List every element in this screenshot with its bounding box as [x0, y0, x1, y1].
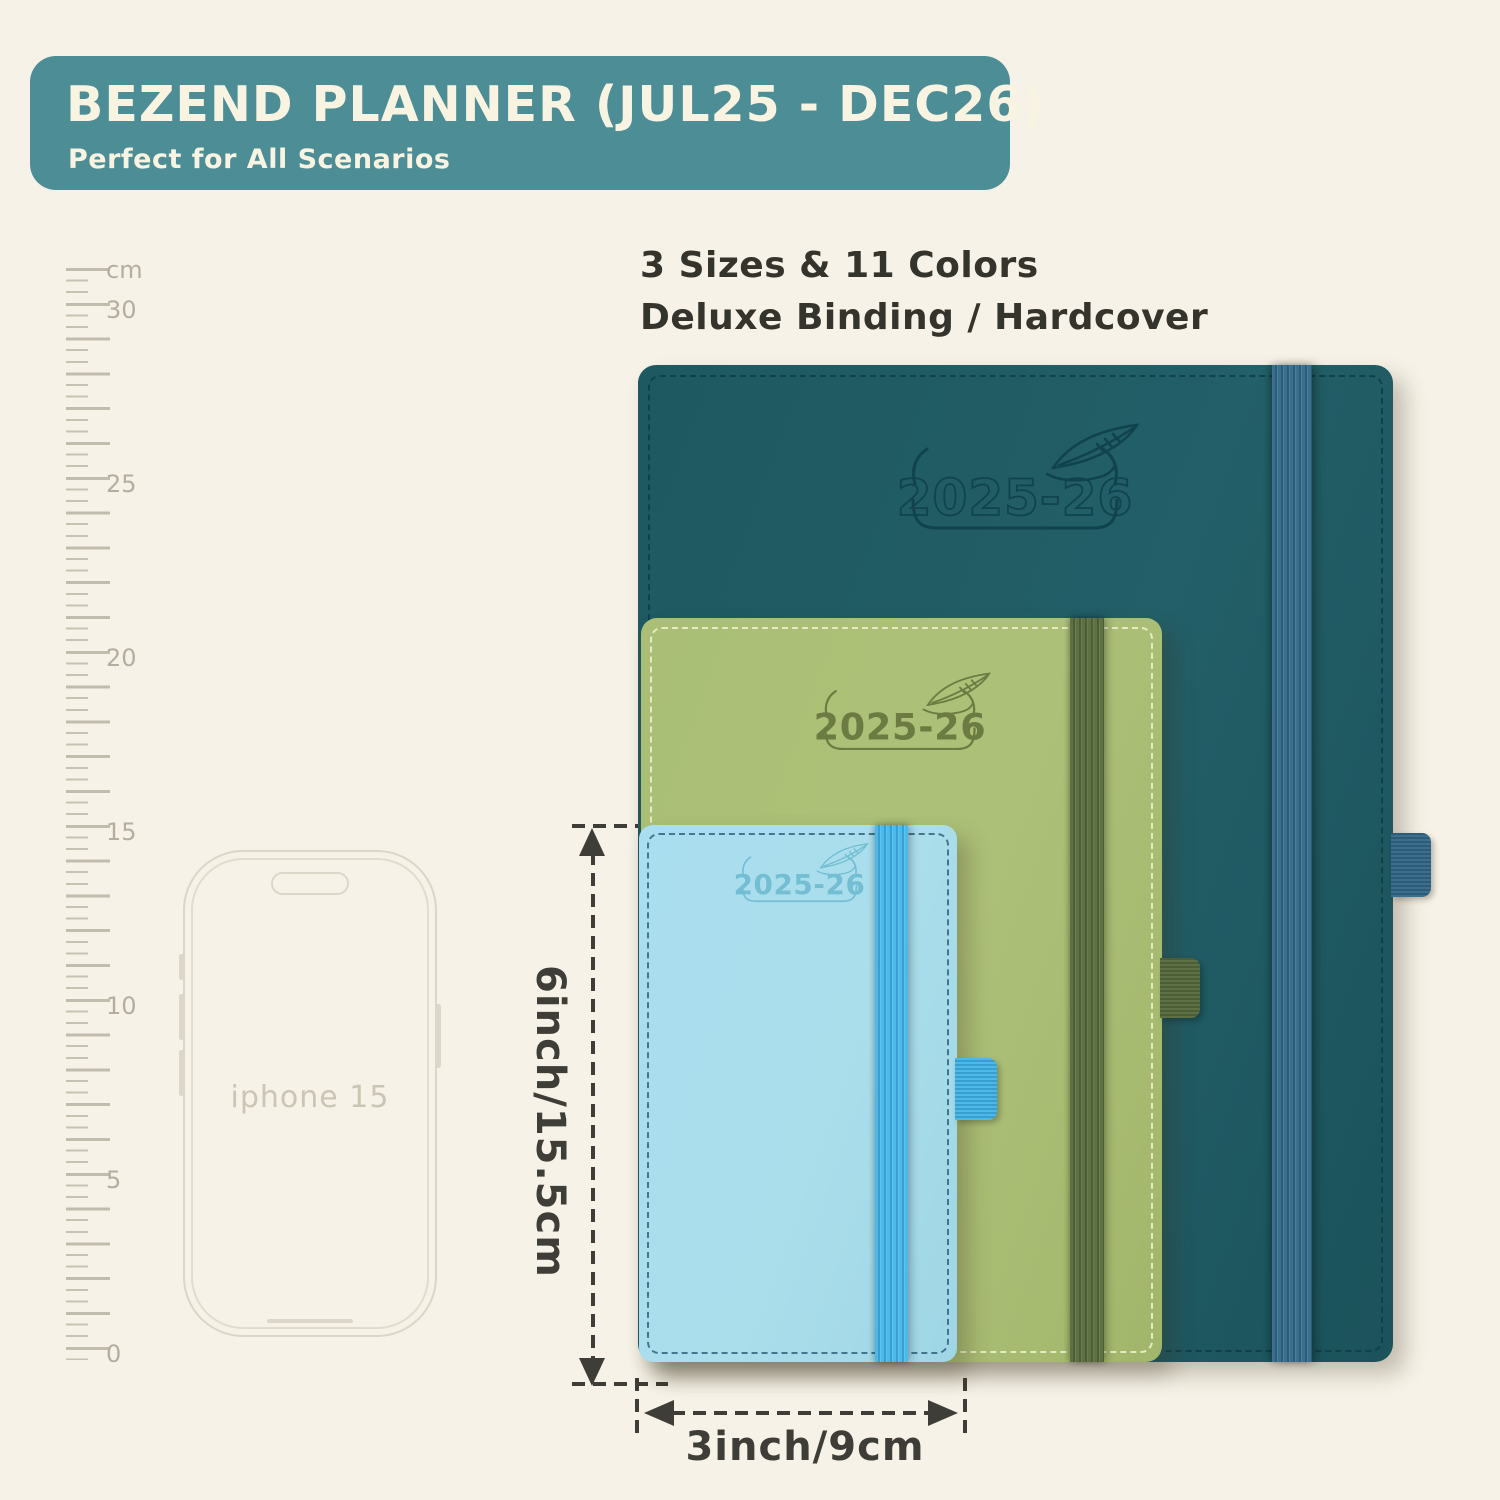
year-emboss: 2025-26	[897, 469, 1134, 527]
dynamic-island	[271, 872, 349, 895]
arrow-down-icon	[579, 1358, 605, 1386]
year-emboss: 2025-26	[734, 868, 866, 901]
extension-line	[635, 1378, 639, 1440]
arrow-up-icon	[579, 828, 605, 856]
pen-loop	[1160, 958, 1200, 1018]
ruler-unit-label: cm	[106, 256, 143, 284]
cover-emboss: 2025-26	[727, 841, 872, 914]
arrow-right-icon	[928, 1400, 958, 1426]
planner-small: 2025-26	[639, 825, 957, 1362]
volume-down-button	[179, 1050, 184, 1096]
feature-line-2: Deluxe Binding / Hardcover	[640, 292, 1208, 344]
pen-loop	[1391, 833, 1431, 897]
banner: BEZEND PLANNER (JUL25 - DEC26) Perfect f…	[30, 56, 1010, 190]
mute-switch	[179, 954, 184, 980]
extension-line	[963, 1378, 967, 1440]
ruler-label: 0	[106, 1340, 121, 1368]
arrow-left-icon	[644, 1400, 674, 1426]
banner-subtitle: Perfect for All Scenarios	[68, 144, 451, 175]
ruler-label: 15	[106, 818, 137, 846]
ruler-label: 30	[106, 296, 137, 324]
ruler-label: 10	[106, 992, 137, 1020]
dimension-line	[591, 852, 595, 1362]
emboss-graphic: 2025-26	[805, 670, 995, 765]
elastic-band	[875, 825, 908, 1362]
banner-title: BEZEND PLANNER (JUL25 - DEC26)	[66, 76, 1045, 133]
feature-text: 3 Sizes & 11 Colors Deluxe Binding / Har…	[640, 240, 1208, 344]
width-label: 3inch/9cm	[655, 1424, 955, 1470]
feature-line-1: 3 Sizes & 11 Colors	[640, 240, 1208, 292]
emboss-graphic: 2025-26	[885, 420, 1145, 550]
ruler-label: 5	[106, 1166, 121, 1194]
phone-label: iphone 15	[185, 1080, 435, 1115]
power-button	[436, 1004, 441, 1068]
product-size-diagram: BEZEND PLANNER (JUL25 - DEC26) Perfect f…	[0, 0, 1500, 1500]
volume-up-button	[179, 994, 184, 1040]
iphone-outline: iphone 15	[183, 850, 437, 1337]
pen-loop	[955, 1058, 997, 1120]
elastic-band	[1272, 365, 1312, 1362]
ruler-label: 25	[106, 470, 137, 498]
speaker-slot	[267, 1319, 353, 1323]
cover-emboss: 2025-26	[885, 420, 1145, 550]
height-label: 6inch/15.5cm	[523, 965, 573, 1245]
emboss-graphic: 2025-26	[727, 841, 872, 914]
elastic-band	[1070, 618, 1104, 1362]
ruler-label: 20	[106, 644, 137, 672]
year-emboss: 2025-26	[814, 706, 987, 749]
dimension-line	[672, 1411, 930, 1415]
cover-emboss: 2025-26	[805, 670, 995, 765]
ruler-major-ticks	[66, 268, 110, 1361]
